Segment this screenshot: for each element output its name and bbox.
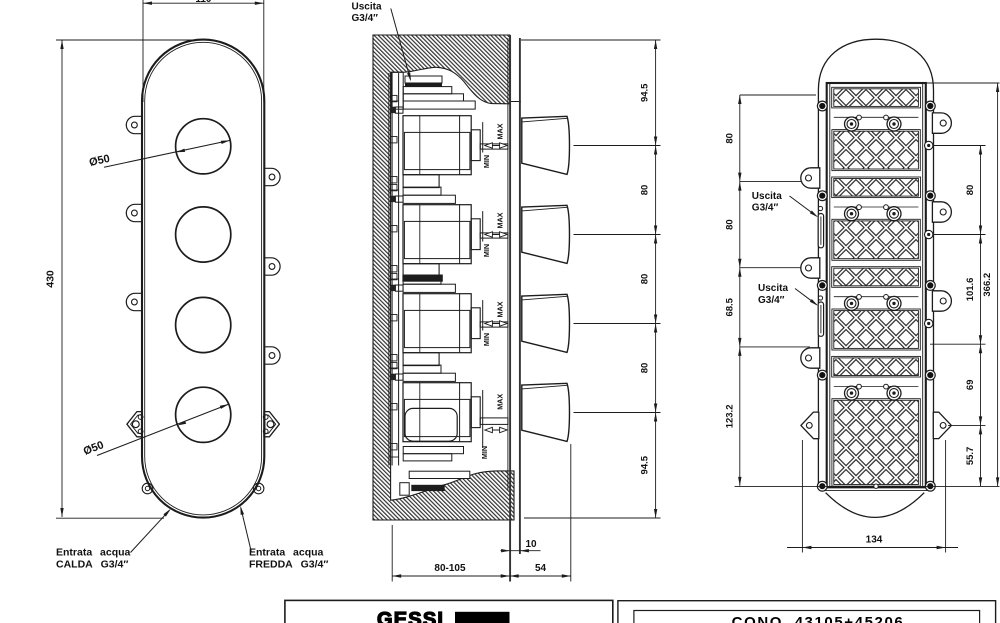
svg-text:80: 80 (639, 363, 650, 374)
svg-text:80: 80 (725, 133, 736, 144)
svg-text:10: 10 (525, 539, 537, 550)
svg-text:80-105: 80-105 (434, 563, 466, 574)
svg-text:MAX: MAX (495, 212, 504, 228)
svg-text:430: 430 (45, 270, 57, 288)
svg-text:366.2: 366.2 (982, 273, 993, 297)
svg-text:G3/4″: G3/4″ (758, 295, 785, 306)
svg-text:68.5: 68.5 (725, 297, 736, 316)
svg-text:80: 80 (725, 219, 736, 230)
svg-text:123.2: 123.2 (725, 405, 736, 429)
svg-text:54: 54 (535, 563, 547, 574)
svg-text:G3/4″: G3/4″ (352, 13, 379, 24)
svg-text:55.7: 55.7 (965, 447, 976, 466)
svg-text:MAX: MAX (496, 394, 505, 410)
svg-text:Entrata acqua: Entrata acqua (56, 547, 131, 559)
svg-text:Uscita: Uscita (758, 283, 788, 294)
svg-text:GESSI: GESSI (377, 609, 444, 623)
svg-text:Entrata acqua: Entrata acqua (249, 547, 324, 559)
svg-text:MAX: MAX (495, 123, 504, 139)
svg-text:80: 80 (965, 185, 976, 196)
svg-text:Uscita: Uscita (752, 191, 782, 202)
svg-text:G3/4″: G3/4″ (752, 202, 779, 213)
svg-text:MIN: MIN (480, 446, 489, 459)
svg-text:110: 110 (195, 0, 212, 5)
svg-text:CALDA G3/4″: CALDA G3/4″ (56, 559, 128, 571)
svg-text:FREDDA G3/4″: FREDDA G3/4″ (249, 559, 328, 571)
svg-text:134: 134 (866, 535, 883, 546)
svg-text:94.5: 94.5 (639, 455, 650, 474)
svg-text:80: 80 (639, 274, 650, 285)
svg-text:MAX: MAX (495, 301, 504, 317)
svg-text:MIN: MIN (482, 333, 491, 346)
svg-text:Uscita: Uscita (352, 2, 382, 13)
svg-text:94.5: 94.5 (639, 83, 650, 102)
svg-text:MIN: MIN (482, 244, 491, 257)
svg-text:MIN: MIN (482, 155, 491, 168)
svg-text:CONO 43105+45206: CONO 43105+45206 (732, 614, 905, 623)
svg-text:69: 69 (965, 380, 976, 391)
svg-text:80: 80 (639, 185, 650, 196)
svg-text:101.6: 101.6 (965, 278, 976, 302)
